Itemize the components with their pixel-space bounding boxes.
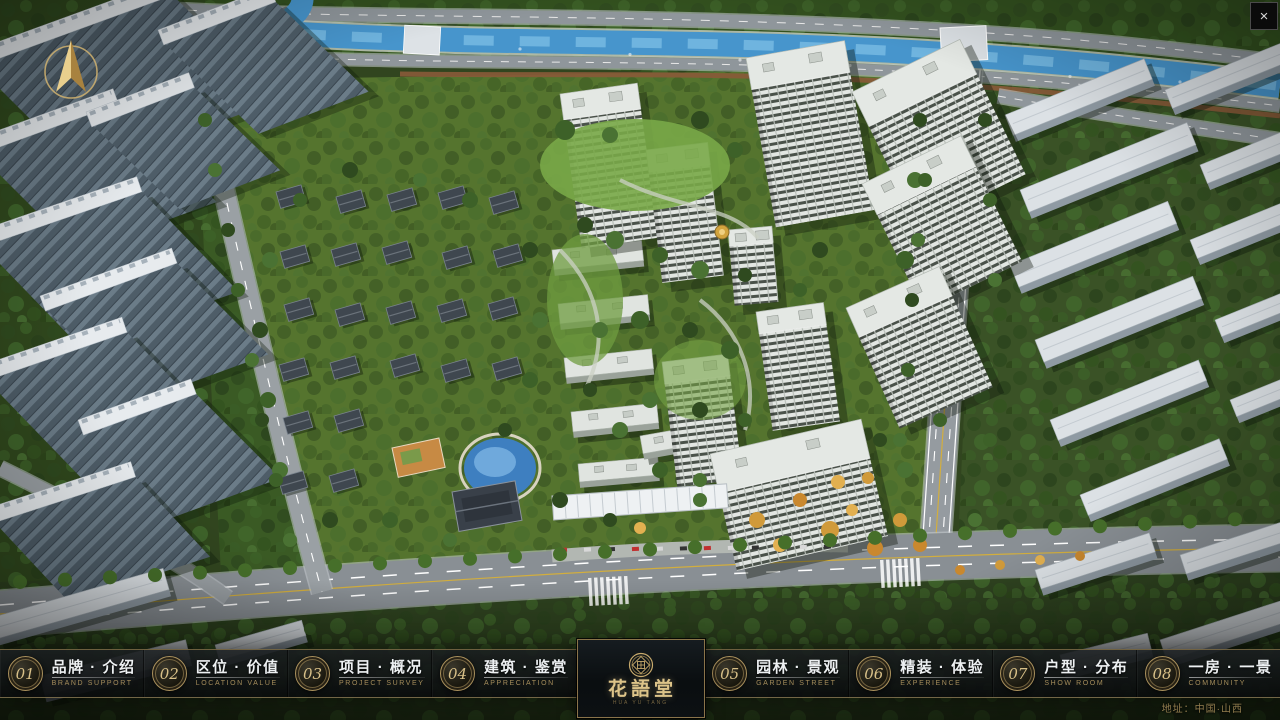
- compass-north-icon: [38, 32, 104, 104]
- menu-label-divider: [339, 677, 425, 678]
- menu-label-zh: 项目 · 概况: [339, 660, 423, 675]
- map-viewport[interactable]: [0, 0, 1280, 720]
- menu-label-en: BRAND SUPPORT: [52, 680, 133, 687]
- menu-number-badge: 02: [152, 656, 187, 691]
- menu-number: 05: [720, 665, 739, 683]
- menu-item-text: 项目 · 概况 PROJECT SURVEY: [339, 660, 425, 687]
- menu-label-zh: 建筑 · 鉴赏: [484, 660, 568, 675]
- menu-number-badge: 08: [1145, 656, 1180, 691]
- menu-item-garden[interactable]: 05 园林 · 景观 GARDEN STREET: [705, 650, 849, 697]
- menu-label-zh: 户型 · 分布: [1044, 660, 1128, 675]
- project-name: 花語堂: [604, 680, 677, 699]
- menu-label-zh: 精装 · 体验: [900, 660, 984, 675]
- menu-number: 02: [160, 665, 179, 683]
- menu-number: 08: [1152, 665, 1171, 683]
- menu-label-zh: 一房 · 一景: [1189, 660, 1273, 675]
- menu-label-en: PROJECT SURVEY: [339, 680, 425, 687]
- menu-item-location[interactable]: 02 区位 · 价值 LOCATION VALUE: [144, 650, 288, 697]
- menu-label-divider: [1189, 677, 1273, 678]
- menu-label-divider: [756, 677, 840, 678]
- menu-number-badge: 04: [440, 656, 475, 691]
- menu-number: 07: [1008, 665, 1027, 683]
- menu-number: 01: [16, 665, 35, 683]
- close-button[interactable]: ×: [1250, 2, 1278, 30]
- menu-number: 04: [448, 665, 467, 683]
- project-address: 地址：中国·山西: [1162, 700, 1243, 715]
- menu-item-text: 区位 · 价值 LOCATION VALUE: [196, 660, 280, 687]
- menu-number-badge: 01: [8, 656, 43, 691]
- menu-label-divider: [1044, 677, 1128, 678]
- menu-number-badge: 03: [295, 656, 330, 691]
- menu-item-text: 户型 · 分布 SHOW ROOM: [1044, 660, 1128, 687]
- menu-number-badge: 05: [712, 656, 747, 691]
- menu-label-divider: [900, 677, 984, 678]
- menu-item-architecture[interactable]: 04 建筑 · 鉴赏 APPRECIATION: [432, 650, 576, 697]
- menu-label-divider: [484, 677, 568, 678]
- project-name-latin: HUA YU TANG: [613, 701, 668, 706]
- menu-label-divider: [196, 677, 280, 678]
- menu-item-floorplans[interactable]: 07 户型 · 分布 SHOW ROOM: [993, 650, 1137, 697]
- menu-number-badge: 06: [856, 656, 891, 691]
- menu-label-en: SHOW ROOM: [1044, 680, 1104, 687]
- menu-label-zh: 品牌 · 介绍: [52, 660, 136, 675]
- menu-label-zh: 园林 · 景观: [756, 660, 840, 675]
- seal-emblem-icon: [628, 652, 654, 678]
- bottom-menu-bar: 01 品牌 · 介绍 BRAND SUPPORT 02 区位 · 价值 LOCA…: [0, 649, 1280, 698]
- menu-label-zh: 区位 · 价值: [196, 660, 280, 675]
- menu-label-en: GARDEN STREET: [756, 680, 836, 687]
- menu-item-interior[interactable]: 06 精装 · 体验 EXPERIENCE: [849, 650, 993, 697]
- close-icon: ×: [1260, 9, 1269, 24]
- menu-label-en: COMMUNITY: [1189, 680, 1247, 687]
- site-aerial-render: [0, 0, 1280, 720]
- menu-item-views[interactable]: 08 一房 · 一景 COMMUNITY: [1137, 650, 1280, 697]
- menu-item-project[interactable]: 03 项目 · 概况 PROJECT SURVEY: [288, 650, 432, 697]
- menu-item-text: 建筑 · 鉴赏 APPRECIATION: [484, 660, 568, 687]
- menu-label-divider: [52, 677, 136, 678]
- menu-item-text: 精装 · 体验 EXPERIENCE: [900, 660, 984, 687]
- menu-item-text: 园林 · 景观 GARDEN STREET: [756, 660, 840, 687]
- menu-item-brand[interactable]: 01 品牌 · 介绍 BRAND SUPPORT: [0, 650, 144, 697]
- menu-number: 03: [303, 665, 322, 683]
- menu-label-en: EXPERIENCE: [900, 680, 961, 687]
- presentation-window: × 01 品牌 · 介绍 BRAND SUPPORT 02 区位 · 价值 LO…: [0, 0, 1280, 720]
- menu-number-badge: 07: [1000, 656, 1035, 691]
- menu-number: 06: [864, 665, 883, 683]
- menu-label-en: LOCATION VALUE: [196, 680, 278, 687]
- menu-item-text: 品牌 · 介绍 BRAND SUPPORT: [52, 660, 136, 687]
- project-logo-panel[interactable]: 花語堂 HUA YU TANG: [577, 639, 705, 718]
- menu-label-en: APPRECIATION: [484, 680, 555, 687]
- menu-item-text: 一房 · 一景 COMMUNITY: [1189, 660, 1273, 687]
